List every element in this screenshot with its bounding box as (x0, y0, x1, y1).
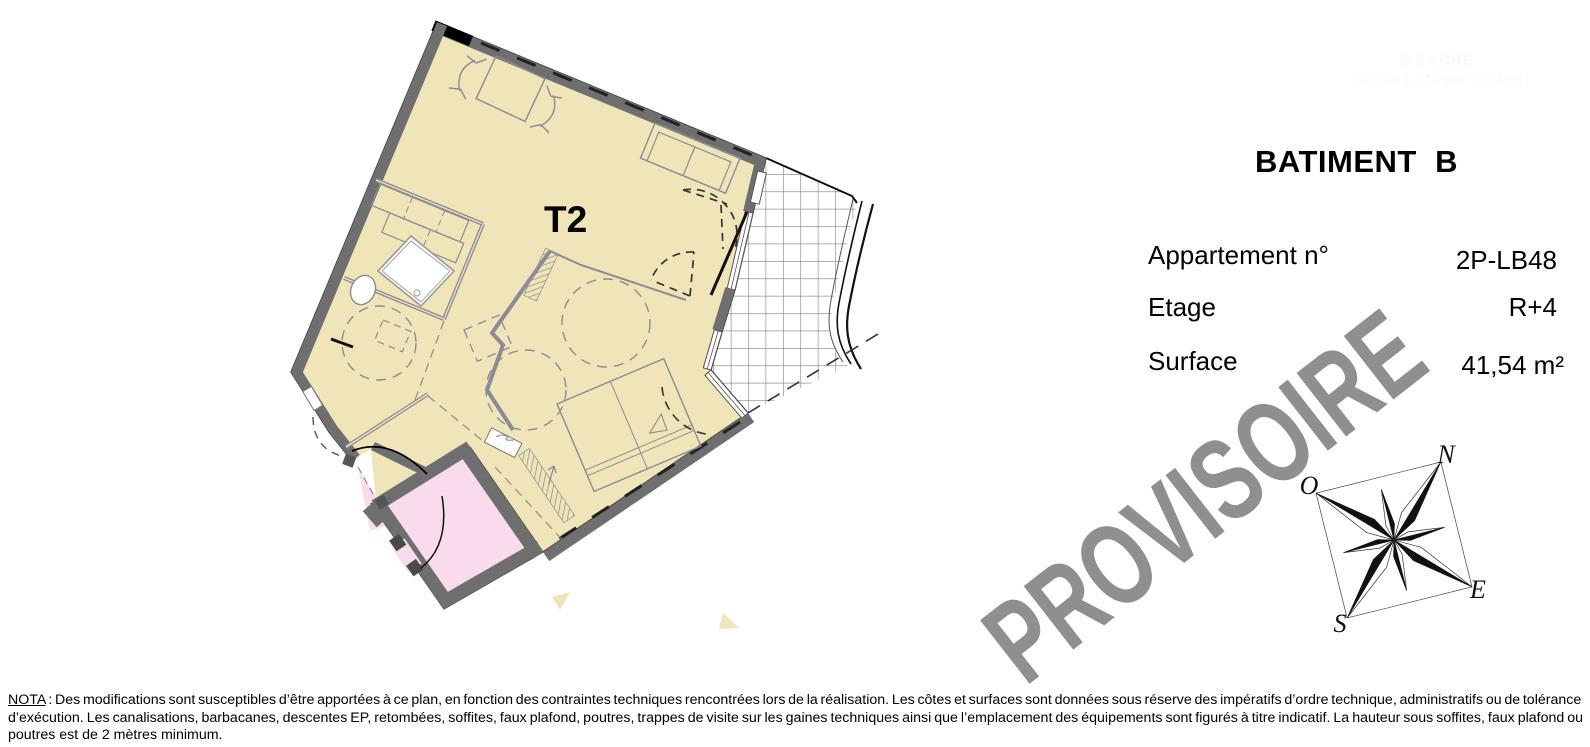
svg-text:O: O (1300, 471, 1319, 500)
svg-text:N: N (1436, 440, 1456, 469)
svg-text:S: S (1334, 609, 1347, 638)
svg-text:T2: T2 (544, 199, 587, 240)
svg-text:E: E (1469, 575, 1486, 604)
